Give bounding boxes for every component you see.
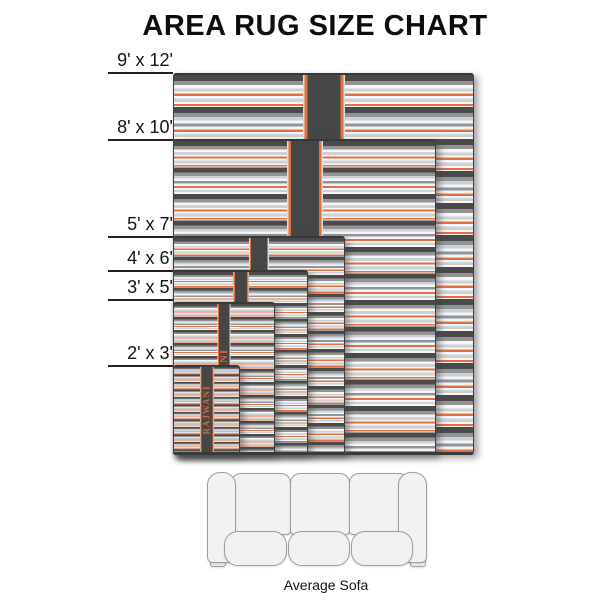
size-label-8x10: 8' x 10' [108, 117, 173, 141]
size-label-9x12: 9' x 12' [108, 50, 173, 74]
sofa-seat-cushion [351, 531, 413, 566]
sofa-caption: Average Sofa [52, 577, 600, 593]
sofa-illustration [207, 470, 427, 567]
size-label-2x3: 2' x 3' [108, 343, 173, 367]
size-label-text: 9' x 12' [117, 50, 173, 70]
size-label-4x6: 4' x 6' [108, 248, 173, 272]
size-label-3x5: 3' x 5' [108, 277, 173, 301]
size-label-text: 3' x 5' [127, 277, 173, 297]
sofa-back-cushion [290, 473, 350, 535]
size-label-5x7: 5' x 7' [108, 214, 173, 238]
size-label-text: 5' x 7' [127, 214, 173, 234]
size-label-text: 8' x 10' [117, 117, 173, 137]
rug-2x3: RAJWANI [173, 365, 240, 455]
sofa-seat-cushion [224, 531, 287, 566]
size-label-text: 4' x 6' [127, 248, 173, 268]
sofa-seat-cushion [288, 531, 350, 566]
brand-text: RAJWANI [202, 385, 211, 434]
rug-band: RAJWANI [200, 367, 214, 452]
area-rug-size-chart: AREA RUG SIZE CHART 9' x 12' 8' x 10' 5'… [0, 0, 600, 600]
sofa-back-cushion [231, 473, 291, 535]
page-title: AREA RUG SIZE CHART [30, 10, 600, 43]
size-label-text: 2' x 3' [127, 343, 173, 363]
